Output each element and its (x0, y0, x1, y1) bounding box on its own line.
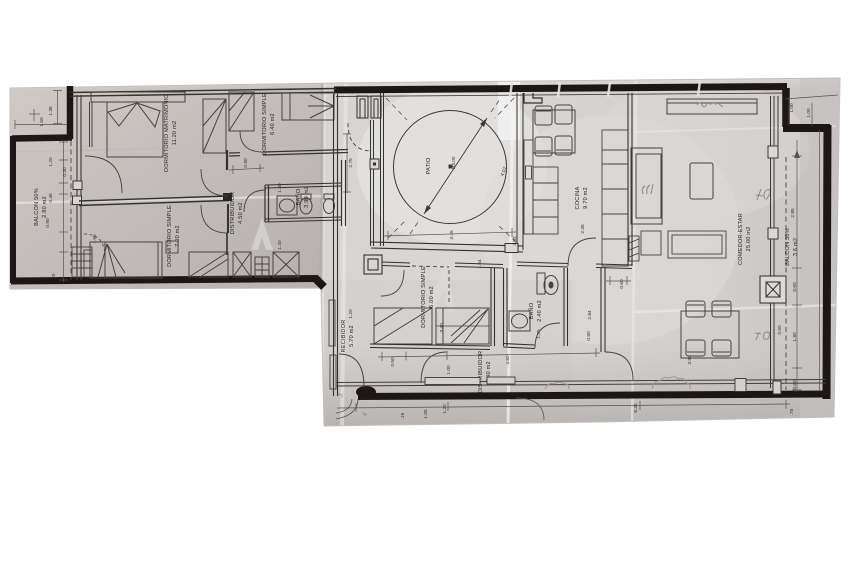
svg-text:5.70 m2: 5.70 m2 (349, 325, 355, 347)
svg-text:1.05: 1.05 (423, 409, 429, 419)
svg-text:0.90: 0.90 (243, 158, 249, 168)
svg-text:1.35: 1.35 (48, 106, 54, 116)
svg-text:3.40: 3.40 (439, 323, 445, 333)
svg-text:1.00: 1.00 (446, 365, 452, 375)
svg-text:4.50 m2: 4.50 m2 (238, 202, 244, 224)
svg-text:.15: .15 (400, 412, 406, 419)
svg-text:1.80: 1.80 (792, 332, 798, 342)
svg-text:0.50: 0.50 (390, 357, 396, 367)
svg-text:3.6 m2: 3.6 m2 (793, 238, 799, 256)
svg-text:COCINA: COCINA (575, 186, 581, 209)
svg-text:4.82: 4.82 (505, 355, 511, 365)
svg-text:COMEDOR-ESTAR: COMEDOR-ESTAR (738, 213, 744, 265)
svg-text:DORMITORIO SIMPLE: DORMITORIO SIMPLE (262, 93, 268, 155)
svg-text:2.75: 2.75 (348, 158, 354, 168)
svg-text:BALCON 50%: BALCON 50% (34, 188, 40, 226)
svg-text:1.00: 1.00 (789, 103, 795, 113)
svg-text:DISTRIBUIDOR: DISTRIBUIDOR (230, 192, 236, 235)
svg-text:0.90: 0.90 (45, 218, 51, 228)
svg-text:3.45: 3.45 (449, 230, 455, 240)
svg-text:BALCON 50%: BALCON 50% (785, 228, 791, 266)
svg-text:RECIBIDOR: RECIBIDOR (341, 320, 347, 353)
svg-text:6.35: 6.35 (633, 403, 639, 413)
svg-text:11.20 m2: 11.20 m2 (172, 121, 178, 146)
svg-text:1.50: 1.50 (39, 117, 45, 127)
svg-text:0.60: 0.60 (792, 380, 798, 390)
svg-text:DORMITORIO SIMPLE: DORMITORIO SIMPLE (421, 266, 427, 328)
svg-text:PATIO: PATIO (426, 157, 432, 174)
svg-text:6.40 m2: 6.40 m2 (270, 113, 276, 135)
svg-text:2.85: 2.85 (790, 208, 796, 218)
svg-text:1.00: 1.00 (806, 108, 812, 118)
svg-text:3.90 m2: 3.90 m2 (304, 186, 310, 208)
svg-text:2.84: 2.84 (587, 310, 593, 320)
svg-text:1.20: 1.20 (348, 309, 354, 319)
svg-text:2.40 m2: 2.40 m2 (537, 300, 543, 322)
svg-text:DISTRIBUIDOR: DISTRIBUIDOR (478, 351, 484, 394)
svg-text:Ø3.00: Ø3.00 (451, 156, 457, 169)
svg-text:0.60: 0.60 (792, 282, 798, 292)
svg-text:6.00 m2: 6.00 m2 (429, 286, 435, 308)
svg-text:3.90: 3.90 (687, 355, 693, 365)
svg-text:0.30: 0.30 (62, 167, 68, 177)
svg-text:0.60: 0.60 (619, 279, 625, 289)
svg-text:.20: .20 (51, 273, 57, 280)
svg-text:1.20: 1.20 (48, 157, 54, 167)
svg-text:1.54: 1.54 (477, 259, 483, 269)
svg-text:0.90: 0.90 (586, 331, 592, 341)
svg-text:25.00 m2: 25.00 m2 (746, 227, 752, 252)
svg-text:2.02: 2.02 (512, 236, 518, 246)
svg-text:0.50: 0.50 (777, 325, 783, 335)
svg-text:1.40: 1.40 (277, 240, 283, 250)
svg-text:9.70 m2: 9.70 m2 (583, 187, 589, 209)
svg-text:0.45: 0.45 (48, 193, 54, 203)
svg-text:1.20: 1.20 (442, 404, 448, 414)
svg-text:2.35: 2.35 (580, 224, 586, 234)
svg-text:2.80 m2: 2.80 m2 (42, 196, 48, 218)
svg-text:.75: .75 (789, 408, 795, 415)
svg-text:DORMITORIO MATRIMONIO: DORMITORIO MATRIMONIO (164, 94, 170, 172)
svg-text:DORMITORIO SIMPLE: DORMITORIO SIMPLE (167, 205, 173, 267)
